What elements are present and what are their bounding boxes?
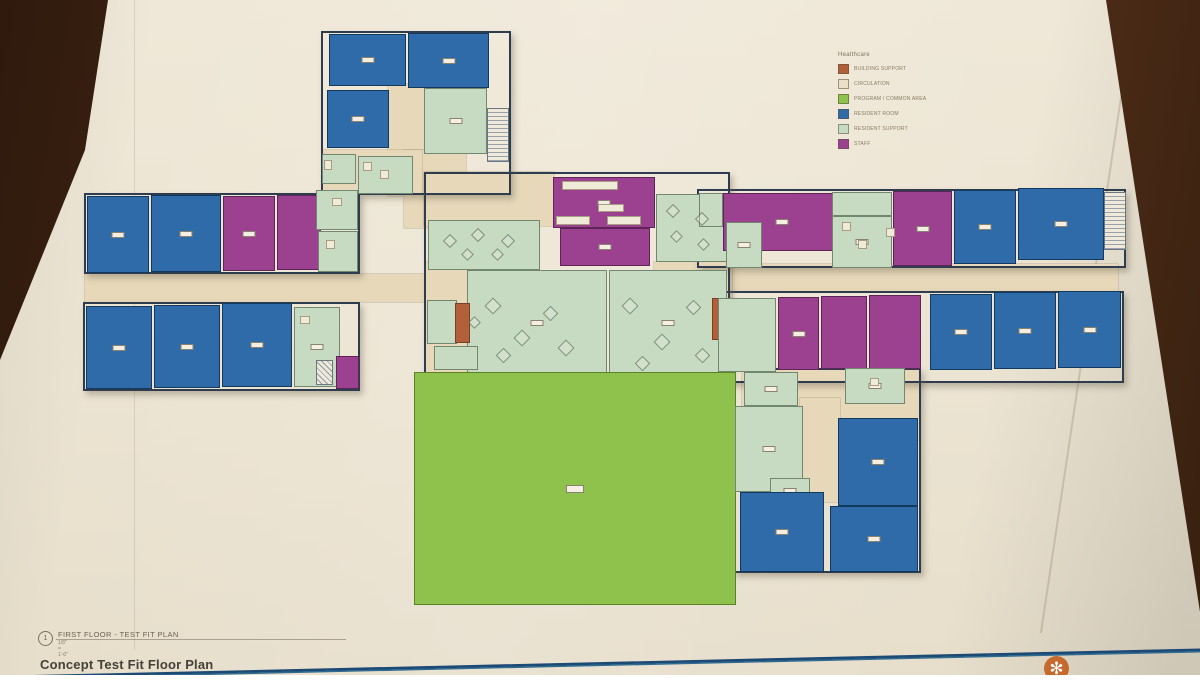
room-blue <box>740 492 824 572</box>
room-tag <box>792 331 805 337</box>
room-mint <box>718 298 776 372</box>
room-tag <box>765 386 778 392</box>
room-mint <box>424 88 487 154</box>
room-green <box>414 372 736 605</box>
legend-item-label: STAFF <box>854 141 870 147</box>
legend-swatch <box>838 79 849 89</box>
room-tag <box>763 446 776 452</box>
room-blue <box>838 418 918 506</box>
fixture <box>607 216 641 225</box>
room-tag <box>311 344 324 350</box>
room-tag <box>979 224 992 230</box>
legend-item-label: CIRCULATION <box>854 81 890 87</box>
room-blue <box>329 34 406 86</box>
room-mint <box>318 231 358 272</box>
fixture <box>556 216 590 225</box>
room-tag <box>916 226 929 232</box>
legend-item-label: RESIDENT ROOM <box>854 111 899 117</box>
room-purple <box>893 191 952 266</box>
room-mint <box>832 192 892 216</box>
room-tag <box>599 244 612 250</box>
room-tag <box>1083 327 1096 333</box>
room-blue <box>1058 291 1121 368</box>
fixture <box>326 240 335 249</box>
drawing-title: FIRST FLOOR - TEST FIT PLAN <box>58 630 179 639</box>
room-tag <box>251 342 264 348</box>
legend: Healthcare BUILDING SUPPORTCIRCULATIONPR… <box>838 52 968 154</box>
room-mint <box>467 270 607 376</box>
room-purple <box>821 296 867 369</box>
room-blue <box>408 33 489 88</box>
room-tag <box>180 231 193 237</box>
room-tag <box>868 536 881 542</box>
room-blue <box>222 303 292 387</box>
room-tag <box>566 485 584 493</box>
room-tag <box>442 58 455 64</box>
room-blue <box>86 306 152 389</box>
legend-item: CIRCULATION <box>838 79 968 89</box>
legend-title: Healthcare <box>838 52 968 58</box>
room-tag <box>776 529 789 535</box>
room-blue <box>87 196 149 273</box>
drawing-scale: 1/8" = 1'-0" <box>58 640 68 658</box>
firm-logo-icon: ✻ <box>1044 656 1069 681</box>
fixture <box>363 162 372 171</box>
room-purple <box>277 195 321 270</box>
room-purple <box>560 228 650 266</box>
room-purple <box>336 356 359 389</box>
stair <box>487 108 509 162</box>
room-tag <box>872 459 885 465</box>
drawing-sheet: Healthcare BUILDING SUPPORTCIRCULATIONPR… <box>0 0 1200 675</box>
room-mint <box>609 270 727 376</box>
legend-swatch <box>838 124 849 134</box>
room-tag <box>181 344 194 350</box>
room-blue <box>1018 188 1104 260</box>
detail-number-bubble: 1 <box>38 631 53 646</box>
fixture <box>324 160 332 170</box>
room-tag <box>776 219 789 225</box>
corridor <box>716 264 1118 292</box>
legend-items: BUILDING SUPPORTCIRCULATIONPROGRAM / COM… <box>838 64 968 149</box>
room-tag <box>955 329 968 335</box>
room-mint <box>434 346 478 370</box>
room-tag <box>1055 221 1068 227</box>
title-underline <box>56 639 346 640</box>
fixture <box>858 240 867 249</box>
room-purple <box>869 295 921 369</box>
fixture <box>598 204 624 212</box>
room-mint <box>427 300 457 344</box>
stair <box>1104 192 1126 250</box>
room-blue <box>151 195 221 272</box>
legend-swatch <box>838 94 849 104</box>
legend-item: RESIDENT SUPPORT <box>838 124 968 134</box>
fixture <box>300 316 310 324</box>
legend-item-label: PROGRAM / COMMON AREA <box>854 96 926 102</box>
fixture <box>842 222 851 231</box>
room-mint <box>428 220 540 270</box>
room-mint <box>316 190 358 230</box>
fixture <box>380 170 389 179</box>
fixture <box>562 181 618 190</box>
room-tag <box>738 242 751 248</box>
room-tag <box>112 232 125 238</box>
floor-plan <box>0 0 1200 675</box>
legend-item-label: BUILDING SUPPORT <box>854 66 906 72</box>
legend-item: BUILDING SUPPORT <box>838 64 968 74</box>
legend-item: PROGRAM / COMMON AREA <box>838 94 968 104</box>
legend-item: STAFF <box>838 139 968 149</box>
room-tag <box>113 345 126 351</box>
legend-item-label: RESIDENT SUPPORT <box>854 126 908 132</box>
fixture <box>332 198 342 206</box>
room-purple <box>778 297 819 370</box>
room-blue <box>154 305 220 388</box>
room-blue <box>930 294 992 370</box>
room-tag <box>361 57 374 63</box>
room-blue <box>830 506 918 572</box>
room-blue <box>994 292 1056 369</box>
room-purple <box>223 196 275 271</box>
room-mint <box>845 368 905 404</box>
room-tag <box>531 320 544 326</box>
room-blue <box>954 190 1016 264</box>
legend-item: RESIDENT ROOM <box>838 109 968 119</box>
room-tag <box>352 116 365 122</box>
room-blue <box>327 90 389 148</box>
legend-swatch <box>838 139 849 149</box>
legend-swatch <box>838 109 849 119</box>
room-mint <box>726 222 762 268</box>
room-tag <box>449 118 462 124</box>
fixture <box>886 228 895 237</box>
elevator-shaft <box>316 360 333 385</box>
room-mint <box>744 372 798 406</box>
room-tag <box>1019 328 1032 334</box>
corridor <box>85 274 441 302</box>
room-tag <box>243 231 256 237</box>
legend-swatch <box>838 64 849 74</box>
sheet-name: Concept Test Fit Floor Plan <box>40 657 213 672</box>
fixture <box>870 378 879 386</box>
room-tag <box>662 320 675 326</box>
